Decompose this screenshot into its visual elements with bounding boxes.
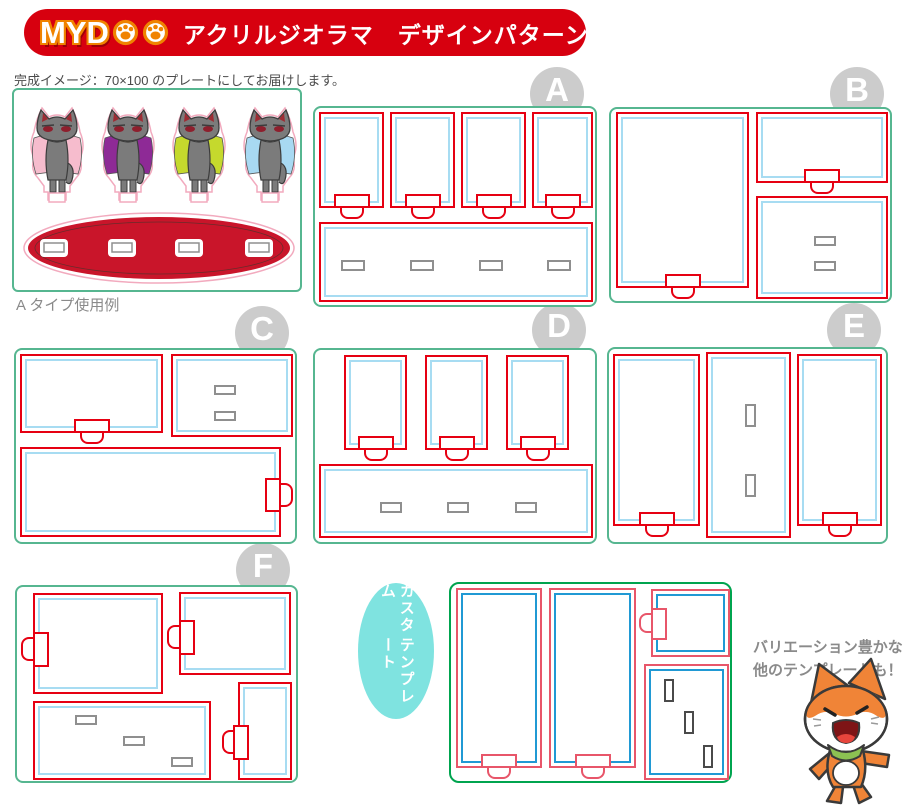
badge-letter: D [547, 307, 571, 344]
badge-letter: C [250, 310, 274, 347]
template-plate-b [609, 107, 892, 303]
standee-piece [20, 447, 281, 537]
page-title: アクリルジオラマ デザインパターン [183, 16, 589, 50]
cat-standee-illustration [97, 100, 159, 204]
base-piece [756, 196, 888, 299]
sample-type-label: A タイプ使用例 [16, 294, 119, 315]
standee-piece [238, 682, 292, 780]
base-piece [171, 354, 293, 437]
cat-standee-illustration [26, 100, 88, 204]
mydoo-logo: MYD [40, 17, 169, 48]
standee-piece [33, 593, 163, 694]
standee-piece [461, 112, 526, 208]
base-piece [33, 701, 211, 780]
fox-mascot [783, 657, 914, 805]
base-piece [319, 222, 593, 302]
standee-piece [613, 354, 700, 526]
sample-plate-example [12, 88, 302, 292]
bubble-line: テンプレート [377, 637, 415, 719]
standee-piece [390, 112, 455, 208]
logo-letters: MYD [40, 17, 109, 48]
finished-image-caption: 完成イメージ：70×100 のプレートにしてお届けします。 [14, 70, 345, 89]
bubble-line: カスタム [377, 583, 415, 637]
standee-piece [425, 355, 488, 450]
standee-piece [456, 588, 542, 768]
base-piece [706, 352, 791, 538]
cat-standee-illustration [239, 100, 301, 204]
design-pattern-sheet: MYD アクリルジオラマ デザインパターン 完成イメージ：70×100 のプレー… [0, 0, 914, 805]
standee-piece [506, 355, 569, 450]
standee-piece [179, 592, 291, 675]
standee-piece [797, 354, 882, 526]
custom-template-bubble: カスタム テンプレート [358, 583, 434, 719]
badge-letter: B [845, 71, 869, 108]
template-plate-custom [449, 582, 732, 783]
template-plate-e [607, 347, 888, 544]
base-piece [644, 664, 729, 780]
template-plate-c [14, 348, 297, 544]
template-plate-f [15, 585, 298, 783]
standee-piece [532, 112, 593, 208]
paw-o-icon [112, 19, 139, 46]
oval-base-illustration [22, 212, 296, 284]
cat-standee-illustration [168, 100, 230, 204]
base-piece [319, 464, 593, 538]
standee-piece [344, 355, 407, 450]
standee-piece [651, 589, 730, 657]
standee-piece [756, 112, 888, 183]
badge-letter: A [545, 71, 569, 108]
template-plate-a [313, 106, 597, 307]
standee-piece [616, 112, 749, 288]
paw-o-icon [142, 19, 169, 46]
standee-piece [319, 112, 384, 208]
header-banner: MYD アクリルジオラマ デザインパターン [24, 9, 586, 56]
standee-piece [20, 354, 163, 433]
badge-letter: E [843, 307, 865, 344]
template-plate-d [313, 348, 597, 544]
badge-letter: F [253, 547, 273, 584]
standee-piece [549, 588, 636, 768]
